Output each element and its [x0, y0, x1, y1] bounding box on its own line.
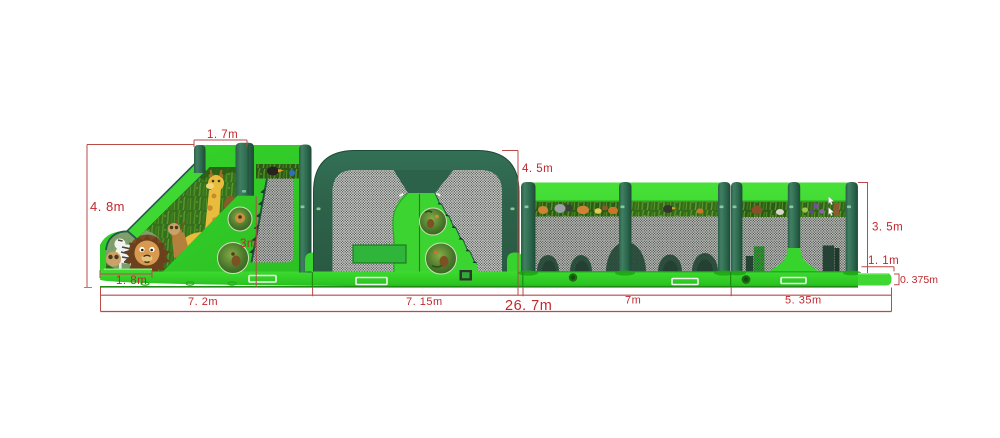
- svg-text:1. 1m: 1. 1m: [868, 255, 899, 267]
- svg-text:4. 5m: 4. 5m: [522, 163, 553, 175]
- svg-text:3m: 3m: [240, 238, 257, 250]
- svg-text:26. 7m: 26. 7m: [505, 298, 552, 314]
- svg-text:7. 15m: 7. 15m: [406, 296, 443, 308]
- svg-text:4. 8m: 4. 8m: [90, 199, 125, 214]
- svg-text:7. 2m: 7. 2m: [188, 296, 218, 308]
- svg-text:5. 35m: 5. 35m: [785, 295, 822, 307]
- svg-text:1. 7m: 1. 7m: [207, 129, 238, 141]
- svg-text:7m: 7m: [625, 295, 641, 307]
- svg-text:1. 8m: 1. 8m: [116, 275, 147, 287]
- svg-text:0. 375m: 0. 375m: [900, 274, 938, 286]
- svg-text:3. 5m: 3. 5m: [872, 222, 903, 234]
